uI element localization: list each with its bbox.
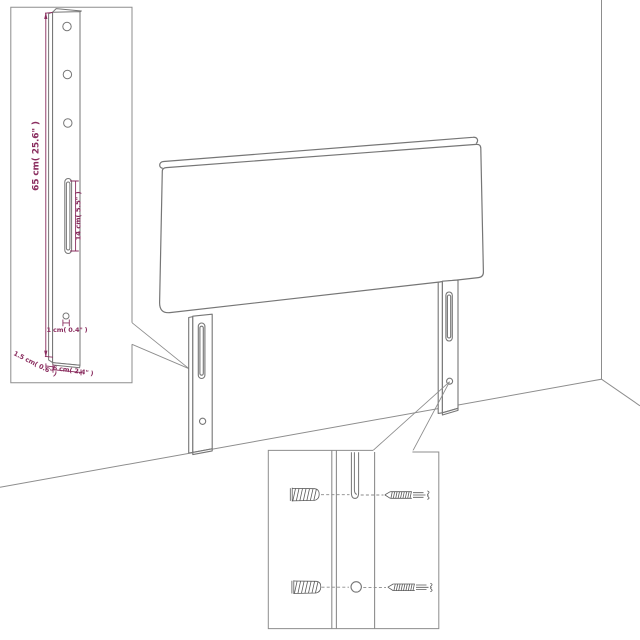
left-leg	[189, 314, 213, 454]
left-leg-screw-hole	[200, 418, 206, 424]
post-hole	[64, 119, 72, 127]
callout-lines-left	[132, 323, 189, 369]
post-bottom-hole	[63, 313, 69, 319]
assembly-instruction-page: 65 cm( 25.6" ) 14 cm( 5.5" ) 1 cm( 0.4" …	[0, 0, 640, 640]
post-hole	[63, 22, 71, 30]
dimension-label-slot-length: 14 cm( 5.5" )	[76, 192, 83, 241]
assembly-diagram	[0, 0, 640, 640]
post-hole	[63, 70, 71, 78]
headboard-panel	[160, 137, 484, 312]
right-leg	[438, 280, 458, 415]
dimension-label-leg-height: 65 cm( 25.6" )	[33, 121, 42, 191]
callout-lines-right	[373, 382, 449, 452]
dimension-label-hole-diameter: 1 cm( 0.4" )	[47, 327, 88, 334]
leg-post	[49, 9, 82, 368]
detail-inset-mounting	[268, 450, 439, 628]
